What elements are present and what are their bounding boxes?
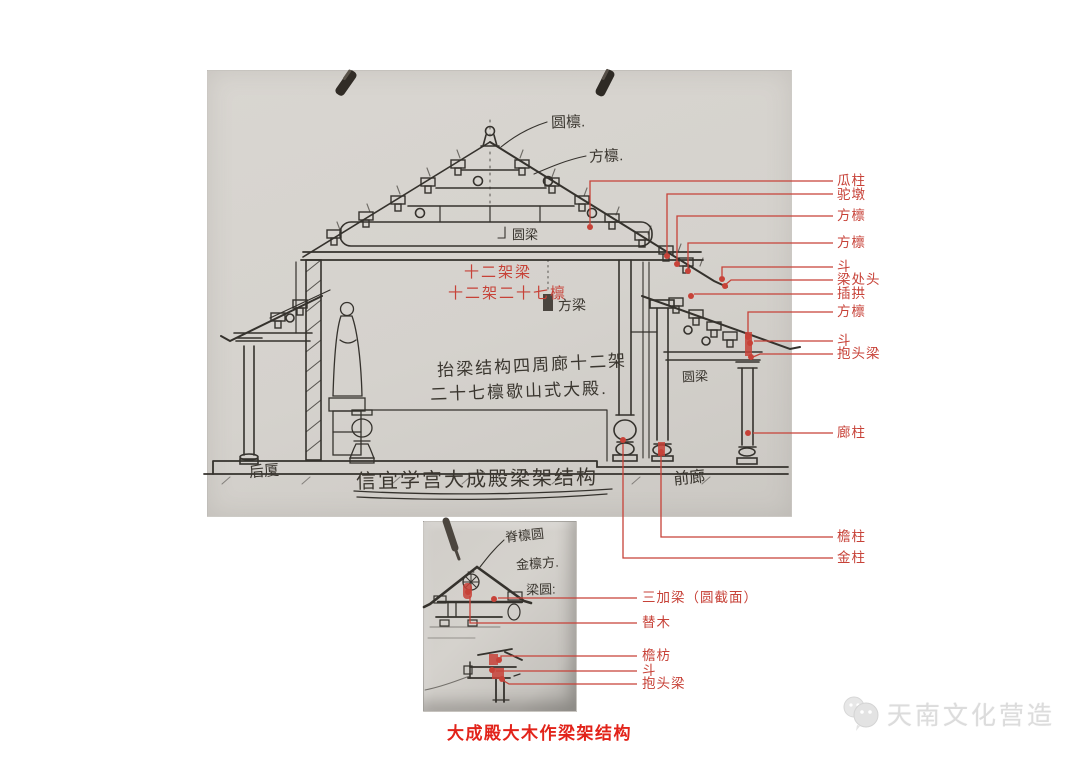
label-insert-bracket: 插拱	[837, 286, 866, 301]
twelve-frame-note: 十二架二十七檩	[448, 282, 567, 303]
watermark-text: 天南文化营造	[887, 696, 1055, 732]
image-caption: 大成殿大木作梁架结构	[447, 719, 632, 744]
article-image: 圆檩. 方檩. 圆梁 方梁 圆梁 抬梁结构四周廊十二架 二十七檩歇山式大殿. 信…	[0, 0, 1080, 764]
sketch-title: 信宜学宫大成殿梁架结构	[356, 461, 598, 494]
wechat-logo-spacer	[843, 696, 879, 732]
label-sanjia-beam: 三加梁（圆截面）	[642, 590, 758, 605]
label-eave-fang: 檐枋	[642, 648, 671, 663]
label-baotou-beam-2: 抱头梁	[642, 676, 686, 691]
rear-porch-note: 后厦	[248, 459, 280, 483]
label-gold-column: 金柱	[837, 550, 866, 565]
label-square-purlin-1: 方檩	[837, 208, 866, 223]
label-melon-post: 瓜柱	[837, 173, 866, 188]
square-purlin-note: 方檩.	[588, 144, 623, 167]
label-baotou-beam: 抱头梁	[837, 346, 881, 361]
detail-sketch-photo	[423, 521, 577, 712]
label-square-purlin-3: 方檩	[837, 304, 866, 319]
label-timu: 替木	[642, 615, 671, 630]
label-beam-end: 梁处头	[837, 272, 881, 287]
label-camel-block: 驼墩	[837, 187, 866, 202]
watermark: 天南文化营造	[843, 696, 1055, 732]
porch-round-beam-note: 圆梁	[682, 365, 709, 385]
round-purlin-note: 圆檩.	[551, 110, 586, 132]
round-beam-note: 圆梁	[512, 224, 538, 243]
label-porch-column: 廊柱	[837, 425, 866, 440]
twelve-purlin-beam-note: 十二架梁	[464, 261, 532, 282]
label-square-purlin-2: 方檩	[837, 235, 866, 250]
ridge-purlin-note: 脊檩圆	[504, 523, 545, 546]
front-porch-note: 前廊	[672, 462, 706, 489]
beam-round-note: 梁圆:	[526, 578, 556, 598]
gold-purlin-note: 金檩方.	[515, 552, 559, 574]
label-eave-column: 檐柱	[837, 529, 866, 544]
